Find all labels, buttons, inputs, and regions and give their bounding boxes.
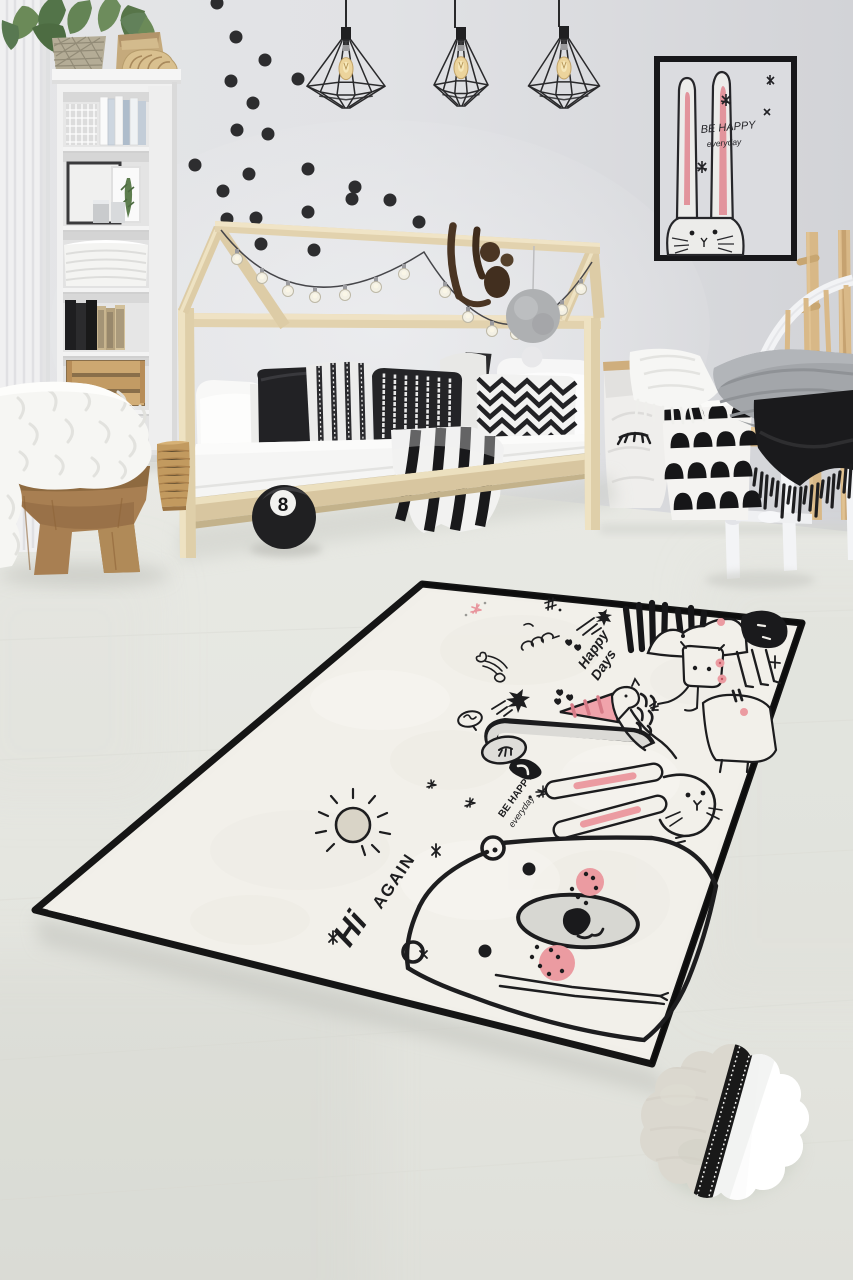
- svg-text:8: 8: [278, 495, 289, 516]
